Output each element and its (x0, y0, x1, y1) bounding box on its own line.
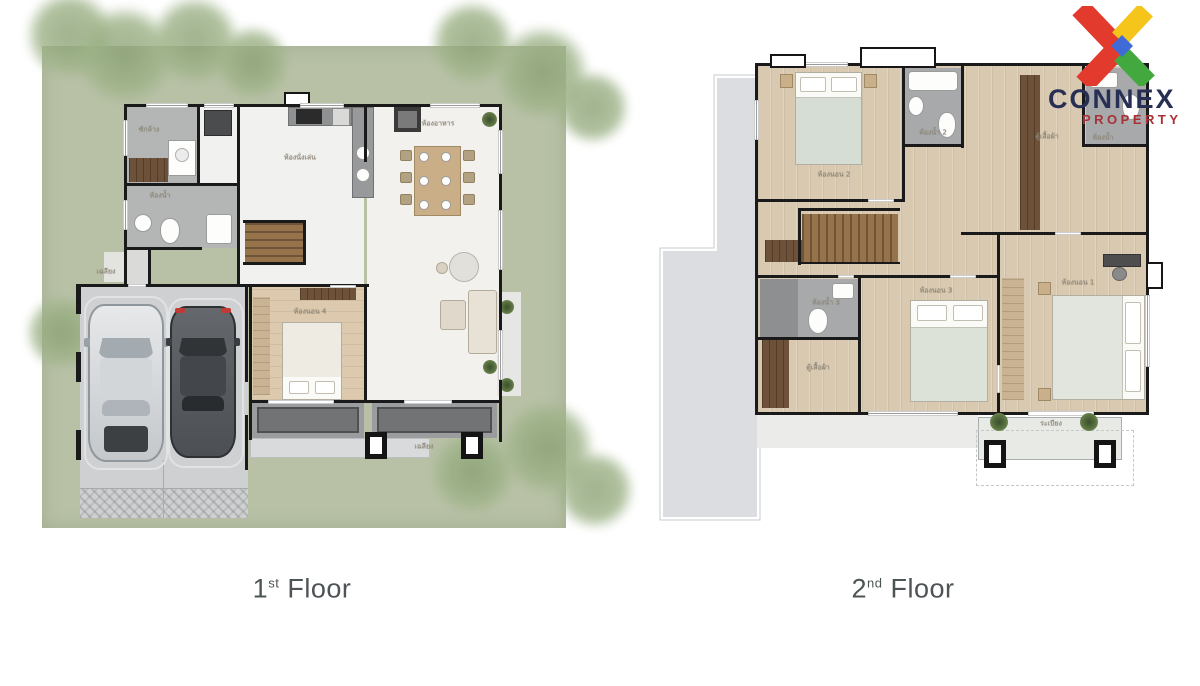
second-floor-plan: ห้องนอน 2 ห้องน้ำ 2 ตู้เสื้อผ้า ห้องน้ำ … (0, 0, 1200, 686)
balcony-column (1094, 440, 1116, 468)
door-gap (997, 365, 1000, 393)
nightstand (864, 74, 877, 88)
floor1-caption: 1st Floor (253, 574, 352, 605)
wardrobe-icon (1020, 75, 1040, 230)
bay-closet (770, 54, 806, 68)
window (754, 100, 759, 140)
stair-landing (765, 240, 802, 262)
wardrobe-icon (1002, 278, 1024, 400)
porch-column (461, 432, 483, 459)
door-gap (838, 275, 854, 278)
connex-x-icon (1070, 6, 1156, 86)
floor2-caption: 2nd Floor (851, 574, 954, 605)
bed-icon (795, 72, 862, 165)
room-label: ห้องนอน 1 (1062, 280, 1095, 287)
wall (858, 275, 861, 415)
wall (902, 144, 964, 147)
room-label: ห้องนั่งเล่น (284, 155, 316, 162)
brand-logo: CONNEX PROPERTY (1040, 0, 1200, 140)
wardrobe-icon (762, 340, 789, 408)
floor1-number: 1 (253, 574, 269, 604)
desk-chair (1112, 267, 1127, 281)
room-label: ห้องนอน 4 (294, 309, 327, 316)
floor1-word: Floor (287, 574, 351, 604)
room-label: ห้องนอน 3 (920, 288, 953, 295)
plant-icon (1080, 413, 1098, 431)
bay-closet (860, 47, 936, 68)
bed-icon (1052, 295, 1145, 400)
floorplan-image: ซักล้าง ห้องน้ำ ห้องนั่งเล่น ห้องอาหาร ห… (0, 0, 1200, 686)
wall (961, 63, 964, 148)
room-label: ห้องน้ำ 3 (812, 300, 840, 307)
floor2-word: Floor (891, 574, 955, 604)
bed-icon (910, 300, 988, 402)
room-label: ห้องน้ำ 2 (919, 130, 947, 137)
nightstand (1038, 282, 1051, 295)
porch-column (365, 432, 387, 459)
sink-icon (832, 283, 854, 299)
desk-icon (1103, 254, 1141, 267)
wall (798, 208, 900, 211)
room-label: ตู้เสื้อผ้า (806, 365, 829, 372)
toilet-icon (808, 308, 828, 334)
room-label: ห้องนอน 2 (818, 172, 851, 179)
staircase-icon (802, 214, 898, 262)
floor2-ordinal: nd (867, 576, 882, 591)
nightstand (1038, 388, 1051, 401)
window (868, 411, 958, 416)
room-label: เฉลียง (415, 444, 434, 451)
brand-name: CONNEX (1048, 84, 1176, 115)
sink-icon (908, 96, 924, 116)
room-label: ซักล้าง (139, 127, 160, 134)
door-gap (1055, 232, 1081, 235)
wall (755, 337, 861, 340)
window (1145, 295, 1150, 367)
wall (798, 208, 801, 265)
brand-subtitle: PROPERTY (1082, 112, 1182, 127)
lower-roof-strip (757, 415, 978, 448)
wall (1082, 144, 1149, 147)
room-label: ห้องน้ำ (150, 193, 171, 200)
door-gap (950, 275, 976, 278)
floor2-number: 2 (851, 574, 867, 604)
shower-area (760, 279, 798, 337)
floor1-ordinal: st (268, 576, 279, 591)
room-label: ระเบียง (1040, 421, 1062, 428)
balcony-column (984, 440, 1006, 468)
bathtub-icon (908, 71, 958, 91)
room-label: ห้องอาหาร (422, 121, 455, 128)
wall (798, 262, 900, 264)
room-label: เฉลียง (97, 269, 116, 276)
nightstand (780, 74, 793, 88)
wall (858, 275, 1000, 278)
door-gap (868, 199, 894, 202)
wall (902, 63, 905, 202)
roof-deck (650, 65, 770, 530)
side-ledge (1146, 262, 1163, 289)
plant-icon (990, 413, 1008, 431)
